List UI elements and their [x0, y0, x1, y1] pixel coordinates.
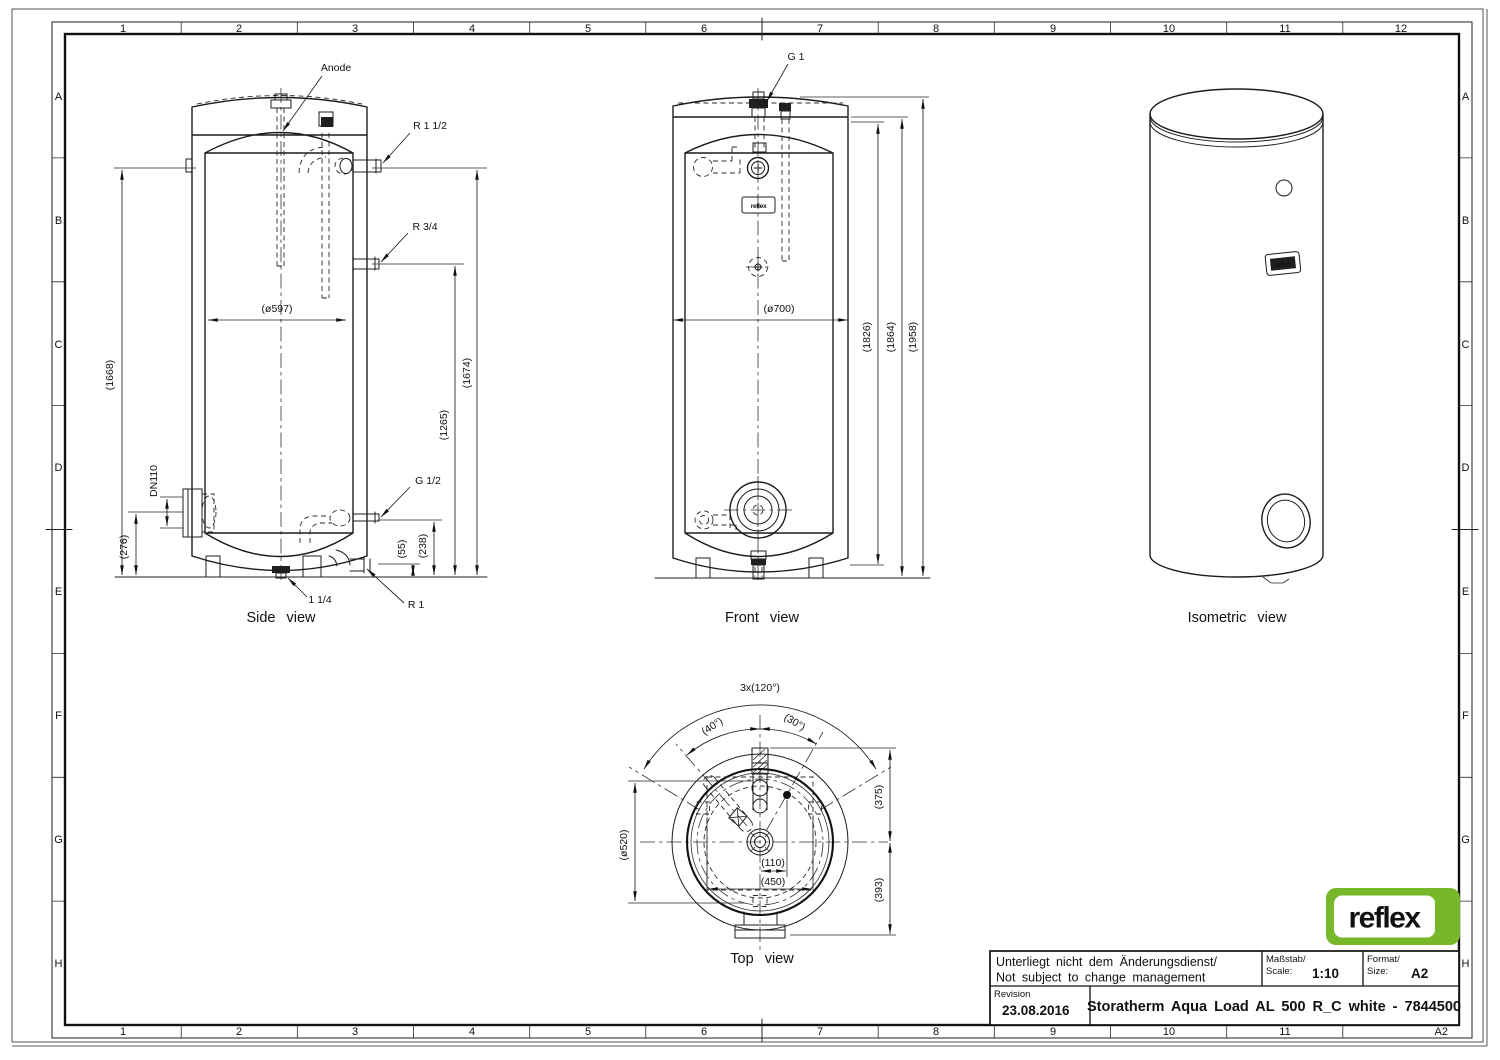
grid-col: 1: [120, 1026, 126, 1038]
grid-row: C: [55, 339, 63, 351]
revision-date: 23.08.2016: [1002, 1003, 1070, 1018]
change-note-de: Unterliegt nicht dem Änderungsdienst/: [996, 955, 1217, 969]
change-note-en: Not subject to change management: [996, 971, 1206, 985]
grid-col: 11: [1279, 23, 1290, 35]
side-dim-55: (55): [396, 540, 408, 559]
front-dim-1826: (1826): [861, 322, 873, 352]
side-anode-leader: [283, 76, 322, 131]
grid-col: 5: [585, 23, 591, 35]
side-g12-label: G 1/2: [415, 475, 441, 487]
grid-row: A: [55, 91, 63, 103]
front-lower-left-bore-hidden: [700, 516, 709, 525]
grid-col: 6: [701, 1026, 707, 1038]
scale-label-en: Scale:: [1266, 966, 1292, 977]
top-dim-393: (393): [873, 878, 885, 903]
side-114-label: 1 1/4: [308, 594, 332, 606]
top-view-caption: Top view: [730, 951, 794, 967]
side-dim-1668: (1668): [104, 360, 116, 390]
side-hidden-lines: [197, 96, 362, 544]
side-r112-label: R 1 1/2: [413, 120, 447, 132]
grid-row: F: [55, 710, 62, 722]
scale-value: 1:10: [1312, 966, 1339, 981]
grid-row: F: [1462, 710, 1469, 722]
grid-row: B: [55, 215, 62, 227]
grid-col: 9: [1050, 1026, 1056, 1038]
grid-col: 8: [933, 23, 939, 35]
format-label-de: Format/: [1367, 954, 1400, 965]
side-r1-label: R 1: [408, 599, 425, 611]
grid-col: 7: [817, 23, 823, 35]
revision-label: Revision: [994, 989, 1030, 1000]
sheet-format-corner: A2: [1435, 1026, 1448, 1038]
grid-col: 1: [120, 23, 126, 35]
grid-row: D: [55, 462, 63, 474]
front-foot-left: [696, 558, 710, 578]
side-r34-leader: [381, 233, 408, 262]
reflex-logo-text: reflex: [1348, 902, 1421, 935]
isometric-view: reflex Isometric view: [1150, 89, 1323, 626]
front-drain-band: [751, 559, 766, 565]
grid-col: 2: [236, 23, 242, 35]
side-view: Anode R 1 1/2 R 3/4 G 1/2 1 1/4 R 1 DN11…: [104, 62, 487, 626]
front-foot-right: [809, 558, 823, 578]
top-dim-30-arc: [760, 729, 817, 744]
side-r112-port: [340, 159, 352, 174]
drawing-title: Storatherm Aqua Load AL 500 R_C white - …: [1087, 999, 1461, 1015]
grid-col: 4: [469, 1026, 475, 1038]
top-dim-d520: (ø520): [618, 830, 630, 861]
grid-col: 9: [1050, 23, 1056, 35]
grid-labels-right: A B C D E F G H: [1461, 91, 1470, 970]
grid-row: E: [1462, 586, 1469, 598]
front-g1-nut: [749, 99, 768, 108]
grid-col: 6: [701, 23, 707, 35]
iso-top-ellipse: [1150, 89, 1323, 139]
side-r112-leader: [383, 133, 410, 163]
side-drain-plug: [272, 566, 290, 573]
side-view-caption: Side view: [246, 610, 316, 626]
front-view: reflex G 1 (ø700) (1826) (1864) (1958) F…: [655, 51, 930, 626]
top-dim-40-arc: [687, 729, 760, 755]
grid-col: 3: [352, 1026, 358, 1038]
iso-bottom-nub: [1263, 577, 1289, 583]
side-foot-right: [303, 556, 321, 577]
front-upper-left-port-hidden: [694, 158, 713, 177]
grid-row: H: [55, 958, 63, 970]
top-dim-40: (40°): [700, 715, 726, 738]
front-g1-label: G 1: [788, 51, 805, 63]
grid-row: E: [55, 586, 62, 598]
grid-col: 4: [469, 23, 475, 35]
front-tube-nut: [779, 103, 791, 111]
side-anode-label: Anode: [321, 62, 352, 74]
side-114-leader: [288, 578, 307, 597]
iso-body: [1150, 114, 1323, 577]
grid-labels-bottom: 1 2 3 4 5 6 7 8 9 10 11 A2: [120, 1026, 1448, 1038]
scale-label-de: Maßstab/: [1266, 954, 1306, 965]
grid-row: G: [1461, 834, 1470, 846]
top-dim-375: (375): [873, 785, 885, 810]
side-dim-276: (276): [118, 535, 130, 560]
front-dim-1864: (1864): [885, 322, 897, 352]
side-dim-d597: (ø597): [262, 303, 293, 315]
side-dn110-label: DN110: [148, 465, 160, 497]
iso-view-caption: Isometric view: [1188, 610, 1287, 626]
front-reflex-plate-text: reflex: [751, 203, 767, 210]
side-dim-1265: (1265): [438, 410, 450, 440]
top-feet-squares: [697, 802, 822, 907]
grid-row: B: [1462, 215, 1469, 227]
grid-col: 5: [585, 1026, 591, 1038]
side-lower-port-hidden: [330, 510, 350, 526]
grid-row: G: [54, 834, 63, 846]
title-block: Unterliegt nicht dem Änderungsdienst/ No…: [990, 951, 1461, 1025]
cad-drawing-sheet: 1 2 3 4 5 6 7 8 9 10 11 12 1 2 3 4 5 6 7…: [0, 0, 1500, 1060]
format-value: A2: [1411, 966, 1428, 981]
front-g1-leader: [767, 64, 788, 101]
grid-col: 12: [1395, 23, 1407, 35]
side-foot-left: [206, 556, 220, 577]
top-sensor-dot: [783, 791, 791, 799]
grid-col: 8: [933, 1026, 939, 1038]
side-r1-leader: [367, 569, 404, 603]
top-dim-3x120: 3x(120°): [740, 682, 780, 694]
iso-sensor-port: [1276, 180, 1292, 196]
side-dim-238: (238): [417, 534, 429, 559]
top-dim-450: (450): [761, 876, 786, 888]
side-dim-1674: (1674): [461, 358, 473, 388]
iso-flange: [1257, 490, 1315, 553]
grid-row: C: [1462, 339, 1470, 351]
grid-row: D: [1462, 462, 1470, 474]
iso-reflex-plate: reflex: [1265, 251, 1301, 275]
grid-row: A: [1462, 91, 1470, 103]
front-lower-left-port-hidden: [695, 511, 713, 529]
top-centerlines: [629, 715, 891, 952]
grid-col: 3: [352, 23, 358, 35]
top-dim-30: (30°): [782, 711, 808, 733]
reflex-logo: reflex: [1326, 888, 1460, 945]
grid-row: H: [1462, 958, 1470, 970]
side-fittings: [183, 94, 381, 578]
front-dim-1958: (1958): [907, 322, 919, 352]
top-dim-110: (110): [761, 857, 785, 869]
side-sensor-tube-nut: [321, 117, 333, 127]
grid-col: 11: [1279, 1026, 1290, 1038]
grid-col: 10: [1163, 23, 1175, 35]
front-reflex-plate: reflex: [742, 197, 775, 213]
grid-col: 7: [817, 1026, 823, 1038]
side-g12-leader: [381, 487, 410, 517]
grid-col: 2: [236, 1026, 242, 1038]
front-dim-d700: (ø700): [764, 303, 795, 315]
grid-labels-left: A B C D E F G H: [54, 91, 63, 970]
side-r34-label: R 3/4: [412, 221, 437, 233]
front-view-caption: Front view: [725, 610, 799, 626]
grid-col: 10: [1163, 1026, 1175, 1038]
format-label-en: Size:: [1367, 966, 1388, 977]
top-view: 3x(120°) (40°) (30°) (ø520) (375) (393) …: [618, 682, 896, 967]
